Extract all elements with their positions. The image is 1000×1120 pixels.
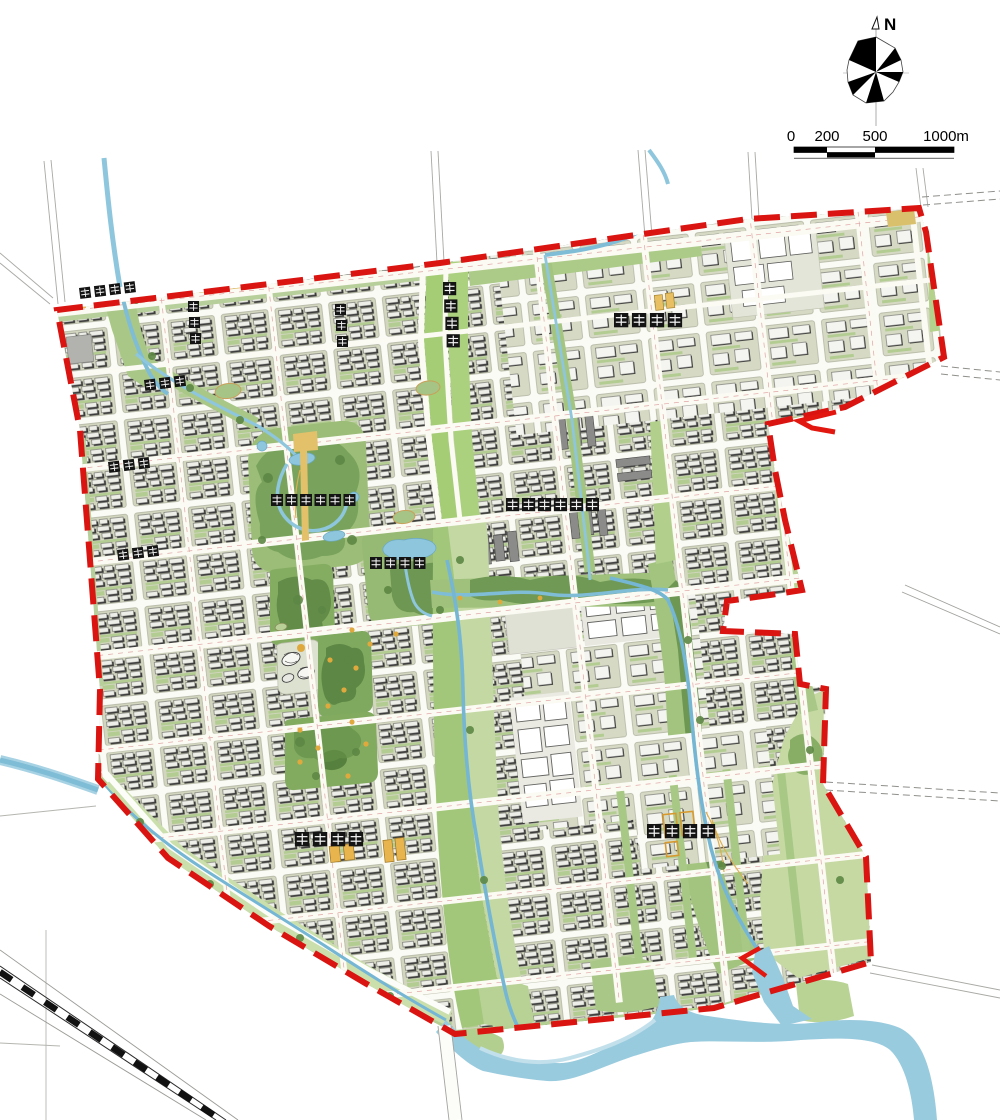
svg-text:N: N xyxy=(884,15,896,34)
svg-text:500: 500 xyxy=(862,128,887,145)
svg-text:0: 0 xyxy=(787,128,795,145)
svg-text:1000m: 1000m xyxy=(923,128,969,145)
svg-text:200: 200 xyxy=(814,128,839,145)
